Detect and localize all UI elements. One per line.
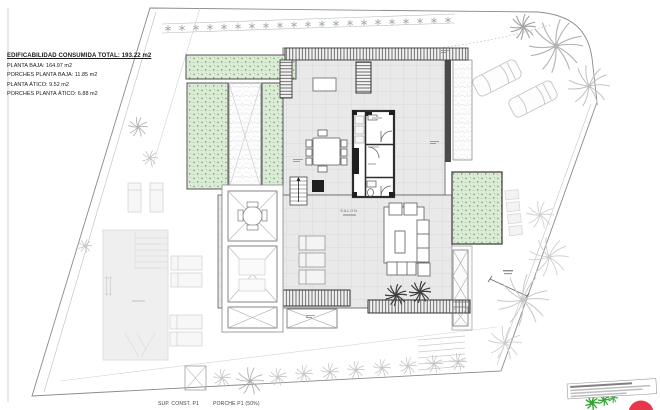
palm-tree-icon (295, 365, 313, 382)
hedge-plant-icon (375, 19, 381, 25)
palm-tree-icon (321, 363, 339, 380)
palm-tree-icon (425, 355, 443, 372)
salon-room-label: SALON (332, 208, 366, 216)
buildability-summary: EDIFICABILIDAD CONSUMIDA TOTAL: 193.22 m… (7, 53, 157, 100)
sink (367, 181, 376, 187)
hedge-strip (162, 14, 455, 33)
hedge-plant-icon (403, 18, 409, 24)
red-marker-dot (629, 401, 654, 410)
summary-line: PORCHES PLANTA ÁTICO: 6.88 m2 (7, 90, 157, 99)
gate-planter-left (185, 366, 206, 390)
hedge-plant-icon (277, 22, 283, 28)
footer-porche: PORCHE P1 (50%) (213, 401, 260, 407)
palm-tree-icon (529, 237, 569, 276)
palm-tree-icon (236, 367, 264, 394)
stepping-stones (505, 190, 523, 236)
wall-right (445, 58, 451, 162)
hedge-plant-icon (417, 18, 423, 24)
closet-shelves (355, 116, 364, 143)
stair-to-atico (356, 62, 371, 93)
kitchen-counter (352, 148, 359, 174)
palm-tree-icon (568, 65, 610, 106)
palm-tree-icon (585, 396, 599, 410)
marble-path-right (453, 60, 472, 160)
footer-sup-const: SUP. CONST. P1 (158, 401, 199, 407)
palm-tree-icon (78, 239, 92, 253)
title-box (567, 379, 657, 399)
hedge-plant-icon (207, 24, 213, 30)
car (507, 79, 559, 119)
micro-label (293, 159, 303, 162)
palm-tree-icon (399, 357, 417, 374)
hedge-plant-icon (305, 21, 311, 27)
micro-label (441, 50, 449, 53)
palm-tree-icon (128, 117, 148, 136)
hedge-plant-icon (333, 20, 339, 26)
palm-tree-icon (510, 14, 536, 40)
hedge-plant-icon (263, 22, 269, 28)
hedge-plant-icon (221, 24, 227, 30)
palm-tree-icon (449, 353, 467, 370)
footer-note: SUP. CONST. P1 PORCHE P1 (50%) (158, 401, 260, 407)
sun-loungers (299, 236, 325, 284)
driveway-dashed-line (440, 25, 550, 48)
palm-tree-icon (529, 19, 583, 72)
swimming-pool-area (103, 183, 202, 360)
hedge-plant-icon (361, 19, 367, 25)
coffee-table (395, 231, 405, 253)
salon-area-placeholder (343, 214, 356, 216)
summary-line: PLANTA ÁTICO: 9.52 m2 (7, 81, 157, 90)
hedge-plant-icon (291, 22, 297, 28)
palm-tree-icon (142, 150, 158, 165)
palm-tree-icon (526, 201, 554, 228)
outdoor-lounge-set (239, 259, 265, 291)
hedge-plant-icon (319, 21, 325, 27)
lawn-column-left (187, 83, 228, 189)
pool (103, 230, 168, 360)
hedge-plant-icon (235, 23, 241, 29)
toilet (368, 189, 374, 197)
stair-wide-lower-left (282, 290, 350, 306)
palm-tree-icon (213, 369, 231, 386)
cars (471, 58, 559, 119)
pool-label-placeholder (132, 300, 145, 302)
stair-small-interior (290, 177, 307, 205)
summary-line: PLANTA BAJA: 164.97 m2 (7, 62, 157, 71)
kitchen-island (312, 180, 324, 192)
lawn-column-right (262, 83, 283, 189)
palm-tree-icon (347, 361, 365, 378)
summary-line: PORCHES PLANTA BAJA: 11.85 m2 (7, 71, 157, 80)
car (471, 58, 523, 98)
hedge-plant-icon (389, 19, 395, 25)
entry-steps-side (280, 60, 292, 98)
hedge-plant-icon (179, 25, 185, 31)
skylight (313, 78, 336, 91)
hedge-plant-icon (347, 20, 353, 26)
hedge-plant-icon (249, 23, 255, 29)
palm-tree-icon (488, 326, 522, 359)
micro-label (430, 141, 439, 144)
lawn-strip-top (186, 55, 296, 79)
palm-tree-icon (373, 359, 391, 376)
hedge-plant-icon (165, 25, 171, 31)
garden-steps-exterior (418, 336, 465, 370)
path-right-lower (452, 246, 472, 330)
site-plan-page: EDIFICABILIDAD CONSUMIDA TOTAL: 193.22 m… (0, 0, 660, 410)
micro-label (306, 315, 315, 318)
hedge-plant-icon (431, 17, 437, 23)
label-placeholder (372, 117, 382, 119)
summary-title: EDIFICABILIDAD CONSUMIDA TOTAL: 193.22 m… (7, 53, 157, 59)
ramp-box-bottom (287, 309, 337, 328)
palm-tree-icon (497, 274, 549, 325)
lawn-square-right (452, 172, 502, 244)
pergola-area (222, 185, 283, 332)
sofa-set (384, 203, 430, 276)
hedge-plant-icon (445, 17, 451, 23)
